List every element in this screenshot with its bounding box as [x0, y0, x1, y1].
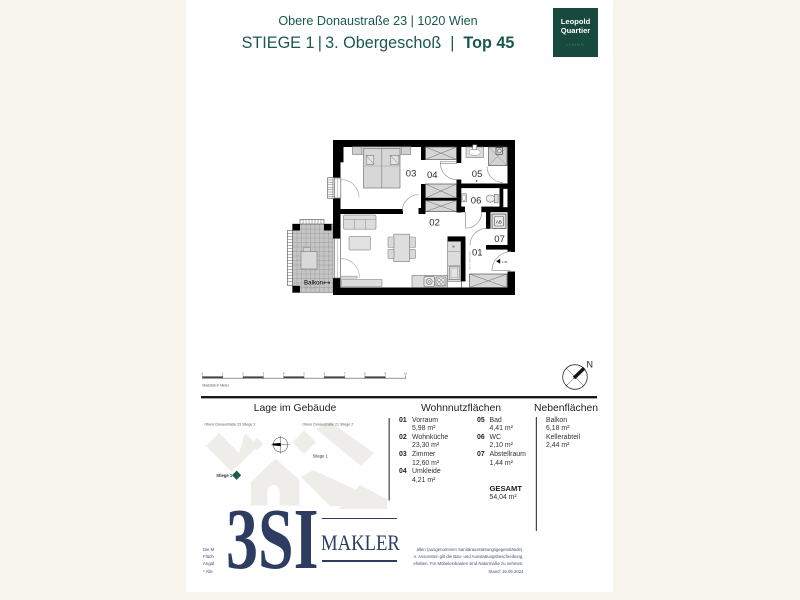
- svg-text:5: 5: [303, 372, 305, 376]
- svg-text:0: 0: [202, 372, 204, 376]
- svg-text:Stiege 1: Stiege 1: [216, 473, 233, 478]
- svg-text:1:40: 1:40: [502, 260, 508, 264]
- svg-text:2: 2: [242, 372, 244, 376]
- svg-text:04: 04: [427, 170, 438, 181]
- svg-text:03: 03: [406, 169, 417, 180]
- svg-text:4: 4: [283, 372, 285, 376]
- svg-text:02: 02: [429, 218, 440, 229]
- svg-text:Balkon: Balkon: [304, 280, 323, 287]
- svg-text:AB: AB: [496, 220, 502, 225]
- svg-text:Obere Donaustraße 23 Stiege 2: Obere Donaustraße 23 Stiege 2: [204, 422, 255, 426]
- svg-text:Maßstab in Meter: Maßstab in Meter: [203, 384, 230, 388]
- svg-text:Obere Donaustraße 21 Stiege 2: Obere Donaustraße 21 Stiege 2: [302, 422, 353, 426]
- svg-text:1: 1: [222, 372, 224, 376]
- svg-text:3: 3: [263, 372, 265, 376]
- svg-text:06: 06: [471, 195, 482, 206]
- svg-text:01: 01: [472, 248, 483, 259]
- svg-text:5,95 x 1,04 m: 5,95 x 1,04 m: [304, 287, 319, 290]
- svg-text:6: 6: [324, 372, 326, 376]
- svg-text:7: 7: [344, 372, 346, 376]
- svg-text:Stiege 1: Stiege 1: [313, 453, 329, 458]
- svg-text:10: 10: [404, 372, 408, 376]
- svg-text:05: 05: [472, 169, 483, 180]
- svg-text:9: 9: [384, 372, 386, 376]
- svg-text:8: 8: [364, 372, 366, 376]
- svg-text:N: N: [587, 360, 594, 370]
- svg-text:SW: B 1PA/+HEA/U: SW: B 1PA/+HEA/U: [469, 250, 472, 270]
- svg-text:07: 07: [494, 234, 505, 245]
